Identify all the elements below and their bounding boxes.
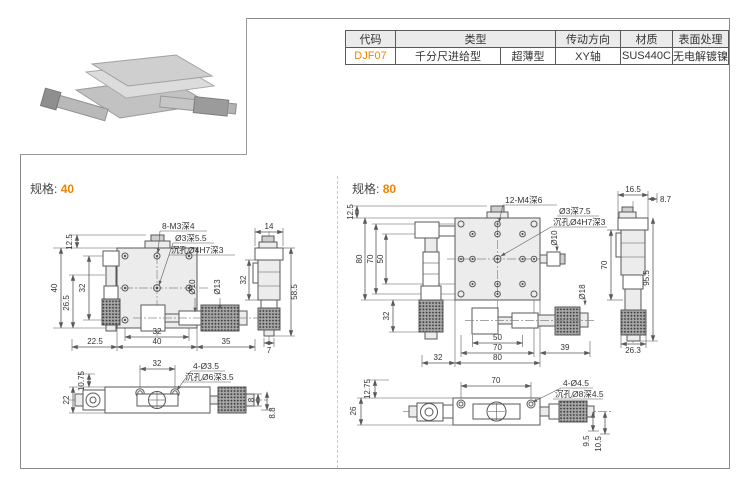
spec80-dim-offset: 32: [434, 353, 443, 362]
table-header-row: 代码 类型 传动方向 材质 表面处理: [346, 31, 729, 48]
spec40-callout-center2: 沉孔Ø4H7深3: [171, 245, 224, 255]
spec40-dim-pitch-h: 32: [153, 327, 162, 336]
spec80-bottom-dim-body: 26: [349, 406, 358, 415]
spec80-side-dim-pitch: 70: [600, 260, 609, 269]
spec80-drawing: 12-M4深6 Ø3深7.5 沉孔Ø4H7深3 12.5 80 70 50 32…: [345, 183, 730, 470]
spec80-dim-dia-knob: Ø10: [550, 230, 559, 246]
header-surface: 表面处理: [673, 31, 729, 48]
spec40-side-dim-height: 58.5: [290, 284, 299, 300]
spec80-top-view: 12-M4深6 Ø3深7.5 沉孔Ø4H7深3 12.5 80 70 50 32…: [346, 195, 607, 367]
product-photo-box: [20, 18, 247, 155]
spec80-dim-mic-left-v: 32: [382, 311, 391, 320]
cell-direction: XY轴: [556, 48, 621, 65]
spec40-bottom-view: 10.75 22 32 4-Ø3.5 沉孔Ø6深3.5 8 8.8: [62, 359, 277, 419]
spec80-dim-pitch-inner-v: 50: [376, 254, 385, 263]
spec80-callout-center1: Ø3深7.5: [559, 206, 591, 216]
spec40-bottom-dim-tip1: 8: [247, 397, 256, 402]
spec40-bottom-callout2: 沉孔Ø6深3.5: [185, 372, 234, 382]
spec40-dim-pitch-v: 32: [78, 283, 87, 292]
spec40-bottom-dim-pitch: 32: [153, 359, 162, 368]
table-data-row: DJF07 千分尺进给型 超薄型 XY轴 SUS440C 无电解镀镍: [346, 48, 729, 65]
spec40-side-view: 14 32 58.5 7: [239, 222, 299, 355]
spec80-dim-dia-knurl: Ø18: [578, 284, 587, 300]
spec40-dim-offset: 22.5: [87, 337, 103, 346]
spec40-dim-dia-spindle: Ø10: [188, 279, 197, 295]
spec40-dim-height: 40: [50, 283, 59, 292]
spec80-dim-pitch-outer-h: 70: [493, 343, 502, 352]
spec80-side-dim-bottom: 26.3: [625, 346, 641, 355]
header-type: 类型: [396, 31, 556, 48]
header-code: 代码: [346, 31, 396, 48]
spec40-bottom-dim-tip2: 8.8: [268, 407, 277, 419]
spec40-bottom-dim-body: 22: [62, 395, 71, 404]
spec40-callout-holes: 8-M3深4: [162, 221, 195, 231]
spec40-bottom-callout1: 4-Ø3.5: [193, 361, 219, 371]
spec80-dim-width: 80: [493, 353, 502, 362]
spec80-dim-pitch-inner-h: 50: [493, 333, 502, 342]
spec40-dim-width: 40: [153, 337, 162, 346]
spec80-callout-center2: 沉孔Ø4H7深3: [553, 217, 606, 227]
product-photo: [20, 18, 246, 154]
spec80-bottom-dim-offset: 12.75: [363, 378, 372, 399]
header-material: 材质: [621, 31, 673, 48]
spec40-side-dim-pitch: 32: [239, 275, 248, 284]
spec40-side-dim-bottom: 7: [267, 346, 272, 355]
cell-material: SUS440C: [621, 48, 673, 65]
spec80-side-dim-height: 95.5: [642, 270, 651, 286]
cell-code: DJF07: [346, 48, 396, 65]
spec80-side-dim-top2: 8.7: [660, 195, 672, 204]
spec80-bottom-callout1: 4-Ø4.5: [563, 378, 589, 388]
spec80-callout-holes: 12-M4深6: [505, 195, 543, 205]
spec80-bottom-dim-tip2: 10.5: [594, 436, 603, 452]
spec40-bottom-dim-offset: 10.75: [77, 370, 86, 391]
spec80-bottom-dim-pitch: 70: [492, 376, 501, 385]
spec80-dim-mic-right: 39: [561, 343, 570, 352]
spec80-dim-knob: 12.5: [346, 204, 355, 220]
spec40-dim-knob: 12.5: [65, 234, 74, 250]
header-direction: 传动方向: [556, 31, 621, 48]
spec40-dim-dia-sleeve: Ø13: [213, 279, 222, 295]
spec80-dim-pitch-outer-v: 70: [366, 254, 375, 263]
spec40-side-dim-top: 14: [265, 222, 274, 231]
spec80-dim-height: 80: [355, 254, 364, 263]
spec80-bottom-dim-tip1: 9.5: [582, 435, 591, 447]
cell-surface: 无电解镀镍: [673, 48, 729, 65]
spec80-side-dim-top: 16.5: [625, 185, 641, 194]
spec40-top-view: 8-M3深4 Ø3深5.5 沉孔Ø4H7深3 12.5 40 32 26.5 3…: [50, 221, 261, 351]
spec40-callout-center1: Ø3深5.5: [175, 233, 207, 243]
spec80-bottom-view: 12.75 26 70 4-Ø4.5 沉孔Ø8深4.5 9.5 10.5: [349, 376, 611, 452]
spec80-bottom-callout2: 沉孔Ø8深4.5: [555, 389, 604, 399]
spec40-dim-mic-right: 35: [222, 337, 231, 346]
product-spec-table: 代码 类型 传动方向 材质 表面处理 DJF07 千分尺进给型 超薄型 XY轴 …: [345, 30, 729, 65]
spec80-side-view: 16.5 8.7 70 95.5 26.3: [600, 185, 672, 355]
section-divider: [337, 176, 338, 468]
spec40-drawing: 8-M3深4 Ø3深5.5 沉孔Ø4H7深3 12.5 40 32 26.5 3…: [25, 191, 335, 468]
spec40-dim-mic-left: 26.5: [62, 295, 71, 311]
cell-type-feed: 千分尺进给型: [396, 48, 501, 65]
cell-type-profile: 超薄型: [501, 48, 556, 65]
